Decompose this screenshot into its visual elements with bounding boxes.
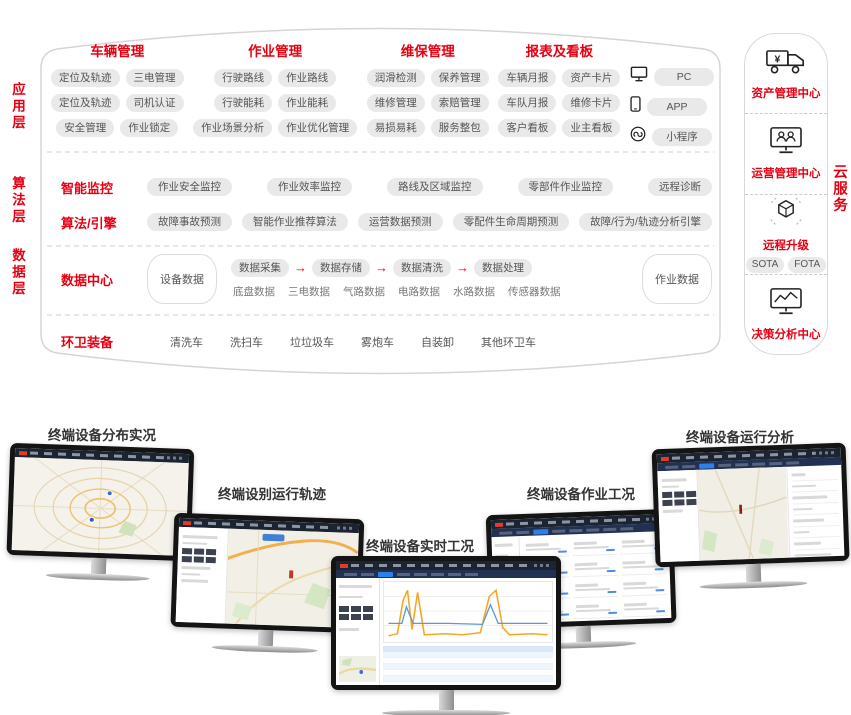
monitor-1: [6, 443, 195, 583]
placeholder-text-line: [623, 582, 646, 585]
placeholder-text-line: [575, 583, 598, 586]
placeholder-text-line: [622, 561, 645, 564]
feature-pill: 润滑检测: [367, 69, 425, 87]
equipment-item: 洗扫车: [230, 334, 263, 350]
flow-arrow-icon: →: [375, 263, 388, 273]
monitor-label: 终端设备运行分析: [686, 426, 794, 446]
active-tab: [699, 463, 714, 469]
feature-pill: 索赔管理: [431, 94, 489, 112]
client-pill: PC: [654, 68, 714, 86]
tab-segment: [569, 528, 582, 531]
pill-row: 维修管理索赔管理: [367, 94, 489, 112]
screen-map: [12, 457, 189, 556]
card-link: [606, 548, 615, 551]
device-tree-panel: [336, 578, 380, 685]
layer-label-1: 应用层: [8, 82, 26, 132]
pill-row: 行驶能耗作业能耗: [214, 94, 336, 112]
telemetry-table: [383, 646, 553, 682]
pill-row: 定位及轨迹三电管理: [51, 69, 184, 87]
feature-pill: 车辆月报: [498, 69, 556, 87]
monitor-frame: [6, 443, 194, 561]
screen-logo: [661, 456, 669, 460]
ota-pill: FOTA: [788, 257, 826, 273]
algorithm-pill: 故障事故预测: [147, 213, 232, 231]
client-pill: APP: [647, 98, 707, 116]
placeholder-text-line: [792, 484, 817, 487]
flow-step-pill: 数据采集: [231, 259, 289, 277]
placeholder-text-line: [793, 518, 824, 522]
monitor-stand-base: [211, 644, 318, 654]
cloud-services-label: 云服务: [829, 164, 850, 214]
monitor-stand-base: [382, 710, 511, 715]
equipment-item: 其他环卫车: [481, 334, 536, 350]
placeholder-text-line: [181, 579, 208, 582]
cloud-section-label: 远程升级: [763, 237, 809, 253]
operation-data-store: 作业数据: [642, 254, 712, 304]
data-center-title: 数据中心: [61, 270, 147, 289]
status-card: [572, 558, 617, 578]
tab-segment: [586, 528, 599, 531]
monitor-stand-neck: [745, 564, 761, 583]
ota-cube-icon: [768, 195, 804, 233]
algorithm-row: 智能监控作业安全监控作业效率监控路线及区域监控零部件作业监控远程诊断: [61, 175, 712, 199]
screen-user-area: [337, 527, 355, 530]
screen-tabbar: [336, 570, 556, 578]
feature-pill: 作业路线: [278, 69, 336, 87]
pill-row: 易损易耗服务整包: [367, 119, 489, 137]
screen-user-area: [167, 457, 185, 460]
tab-segment: [344, 573, 357, 576]
tab-segment: [397, 573, 410, 576]
group-title: 车辆管理: [90, 40, 144, 60]
tab-segment: [786, 461, 799, 464]
placeholder-text-line: [622, 540, 645, 543]
placeholder-text-line: [623, 565, 658, 569]
feature-group: 报表及看板车辆月报资产卡片车队月报维修卡片客户看板业主看板: [498, 40, 620, 137]
tab-segment: [718, 463, 731, 466]
placeholder-text-line: [339, 596, 363, 599]
data-layer-row: 数据中心设备数据数据采集→数据存储→数据清洗→数据处理底盘数据三电数据气路数据电…: [61, 254, 712, 304]
cloud-section-label: 资产管理中心: [752, 85, 821, 101]
device-data-store: 设备数据: [147, 254, 217, 304]
active-tab: [533, 529, 548, 535]
application-layer-row: 车辆管理定位及轨迹三电管理定位及轨迹司机认证安全管理作业锁定作业管理行驶路线作业…: [51, 40, 714, 147]
decision-chart-icon: [767, 287, 805, 322]
placeholder-text-line: [622, 544, 657, 548]
monitor-frame: [331, 556, 561, 690]
placeholder-text-line: [576, 608, 611, 612]
screen-body: [336, 578, 556, 685]
pill-row: 客户看板业主看板: [498, 119, 620, 137]
feature-pill: 司机认证: [126, 94, 184, 112]
operations-monitor-icon: [767, 126, 805, 161]
feature-pill: 作业场景分析: [193, 119, 272, 137]
algorithm-pill: 零部件作业监控: [518, 178, 614, 196]
svg-text:¥: ¥: [774, 53, 780, 65]
cloud-section: ¥资产管理中心: [745, 34, 827, 113]
monitor-stand-base: [46, 572, 149, 582]
feature-group: 维保管理润滑检测保养管理维修管理索赔管理易损易耗服务整包: [367, 40, 489, 137]
data-type-label: 三电数据: [288, 284, 330, 299]
placeholder-text-line: [623, 586, 658, 590]
flow-arrow-icon: →: [294, 263, 307, 273]
placeholder-text-line: [663, 509, 684, 512]
algorithm-row-title: 智能监控: [61, 178, 147, 197]
client-row: PC: [630, 66, 714, 87]
monitor-screen: [12, 448, 189, 556]
pill-row: 安全管理作业锁定: [56, 119, 178, 137]
feature-pill: 服务整包: [431, 119, 489, 137]
ota-pill: SOTA: [746, 257, 784, 273]
feature-pill: 行驶能耗: [214, 94, 272, 112]
group-title: 作业管理: [248, 40, 302, 60]
feature-pill: 作业能耗: [278, 94, 336, 112]
monitor-label: 终端设别运行轨迹: [218, 483, 326, 503]
cloud-section-label: 决策分析中心: [752, 326, 821, 342]
flow-step-pill: 数据存储: [312, 259, 370, 277]
table-row: [383, 676, 553, 682]
placeholder-text-line: [794, 542, 821, 545]
card-link: [558, 550, 567, 553]
feature-group: 作业管理行驶路线作业路线行驶能耗作业能耗作业场景分析作业优化管理: [193, 40, 357, 137]
tab-segment: [682, 464, 695, 467]
equipment-item: 垃垃圾车: [290, 334, 334, 350]
feature-pill: 业主看板: [562, 119, 620, 137]
analysis-map: [698, 467, 789, 561]
layer-label-2: 算法层: [8, 176, 26, 226]
active-tab: [378, 572, 393, 577]
layer-label-3: 数据层: [8, 248, 26, 298]
placeholder-text-line: [182, 542, 207, 545]
screen-topbar: [336, 561, 556, 570]
asset-truck-icon: ¥: [765, 47, 807, 81]
placeholder-text-line: [574, 541, 597, 544]
group-title: 报表及看板: [526, 40, 594, 60]
card-link: [607, 590, 616, 593]
cloud-section: 远程升级SOTAFOTA: [745, 194, 827, 274]
feature-pill: 客户看板: [498, 119, 556, 137]
tab-segment: [769, 461, 782, 464]
placeholder-text-line: [526, 547, 561, 551]
tab-segment: [414, 573, 427, 576]
card-link: [607, 569, 616, 572]
client-row: APP: [630, 96, 714, 117]
client-row: 小程序: [630, 126, 714, 147]
placeholder-text-line: [791, 473, 805, 476]
placeholder-text-line: [576, 588, 611, 592]
card-link: [560, 613, 569, 616]
tab-segment: [603, 527, 616, 530]
data-row: [794, 560, 841, 562]
screen-nav-items: [351, 564, 531, 567]
algorithm-pill: 作业安全监控: [147, 178, 232, 196]
placeholder-text-line: [793, 507, 813, 510]
algorithm-pill-row: 故障事故预测智能作业推荐算法运营数据预测零配件生命周期预测故障/行为/轨迹分析引…: [147, 213, 712, 231]
monitor-label: 终端设备实时工况: [366, 535, 474, 555]
screen-logo: [183, 521, 191, 525]
feature-pill: 资产卡片: [562, 69, 620, 87]
monitor-stand-neck: [576, 626, 592, 643]
client-pill: 小程序: [652, 128, 712, 146]
placeholder-text-line: [526, 543, 549, 546]
analysis-data-panel: [786, 465, 844, 558]
data-flow-wrap: 数据采集→数据存储→数据清洗→数据处理底盘数据三电数据气路数据电路数据水路数据传…: [217, 259, 642, 299]
data-type-label: 底盘数据: [233, 284, 275, 299]
equipment-title: 环卫装备: [61, 332, 147, 351]
placeholder-text-line: [794, 553, 831, 557]
detail-table-blocks: [339, 606, 376, 620]
feature-group: 车辆管理定位及轨迹三电管理定位及轨迹司机认证安全管理作业锁定: [51, 40, 184, 137]
miniprogram-icon: [630, 126, 646, 147]
pill-row: 定位及轨迹司机认证: [51, 94, 184, 112]
status-card: [572, 537, 617, 557]
placeholder-text-line: [339, 628, 359, 631]
placeholder-text-line: [662, 478, 687, 481]
cloud-section: 决策分析中心: [745, 274, 827, 354]
placeholder-text-line: [662, 485, 679, 488]
algorithm-pill: 零配件生命周期预测: [453, 213, 570, 231]
placeholder-text-line: [575, 567, 610, 571]
monitors-showcase: 终端设备分布实况终端设别运行轨迹终端设备实时工况终端设备作业工况终端设备运行分析: [0, 408, 851, 715]
vehicle-detail-panel: [176, 527, 230, 624]
placeholder-text-line: [574, 546, 609, 550]
ota-pill-row: SOTAFOTA: [746, 257, 826, 273]
monitor-stand-neck: [439, 690, 454, 710]
screen-user-area: [534, 564, 552, 567]
device-panel: [657, 470, 701, 562]
pc-icon: [630, 66, 648, 87]
feature-pill: 易损易耗: [367, 119, 425, 137]
algorithm-pill: 运营数据预测: [358, 213, 443, 231]
monitor-stand-neck: [90, 558, 106, 575]
tab-segment: [552, 529, 565, 532]
feature-pill: 作业优化管理: [278, 119, 357, 137]
tab-segment: [516, 530, 529, 533]
platform-architecture-diagram: 车辆管理定位及轨迹三电管理定位及轨迹司机认证安全管理作业锁定作业管理行驶路线作业…: [33, 22, 728, 377]
data-type-label: 电路数据: [398, 284, 440, 299]
algorithm-pill: 作业效率监控: [267, 178, 352, 196]
tab-segment: [735, 463, 748, 466]
algorithm-row: 算法/引擎故障事故预测智能作业推荐算法运营数据预测零配件生命周期预测故障/行为/…: [61, 210, 712, 234]
screen-user-area: [819, 451, 837, 454]
card-link: [608, 611, 617, 614]
data-type-label: 传感器数据: [508, 284, 561, 299]
flow-arrow-icon: →: [456, 263, 469, 273]
monitor-frame: [652, 443, 850, 568]
cloud-section: 运营管理中心: [745, 113, 827, 193]
tab-segment: [752, 462, 765, 465]
feature-pill: 安全管理: [56, 119, 114, 137]
placeholder-text-line: [495, 543, 513, 546]
cloud-services-panel: ¥资产管理中心运营管理中心远程升级SOTAFOTA决策分析中心: [744, 33, 828, 355]
equipment-row: 环卫装备清洗车洗扫车垃垃圾车雾炮车自装卸其他环卫车: [61, 332, 536, 351]
feature-pill: 定位及轨迹: [51, 69, 120, 87]
equipment-item: 雾炮车: [361, 334, 394, 350]
flow-step-pill: 数据清洗: [393, 259, 451, 277]
algorithm-pill: 故障/行为/轨迹分析引擎: [579, 213, 712, 231]
monitor-stand-base: [699, 580, 808, 590]
telemetry-main: [380, 578, 556, 685]
phone-icon: [630, 96, 641, 117]
monitor-screen: [657, 448, 845, 562]
placeholder-text-line: [624, 603, 647, 606]
screen-logo: [19, 451, 27, 455]
flow-step-pill: 数据处理: [474, 259, 532, 277]
algorithm-pill: 路线及区域监控: [387, 178, 483, 196]
placeholder-text-line: [793, 530, 809, 533]
tab-segment: [665, 465, 678, 468]
algorithm-row-title: 算法/引擎: [61, 213, 147, 232]
algorithm-pill-row: 作业安全监控作业效率监控路线及区域监控零部件作业监控远程诊断: [147, 178, 712, 196]
cloud-section-label: 运营管理中心: [752, 165, 821, 181]
feature-pill: 维修卡片: [562, 94, 620, 112]
screen-logo: [340, 564, 348, 568]
monitor-stand-neck: [257, 630, 273, 647]
monitor-label: 终端设备作业工况: [527, 483, 635, 503]
placeholder-text-line: [339, 585, 372, 588]
algorithm-layer-rows: 智能监控作业安全监控作业效率监控路线及区域监控零部件作业监控远程诊断算法/引擎故…: [61, 168, 712, 245]
algorithm-pill: 远程诊断: [648, 178, 712, 196]
pill-row: 润滑检测保养管理: [367, 69, 489, 87]
feature-pill: 维修管理: [367, 94, 425, 112]
card-link: [656, 610, 665, 613]
data-type-list: 底盘数据三电数据气路数据电路数据水路数据传感器数据: [231, 284, 628, 299]
tab-segment: [448, 573, 461, 576]
data-flow-chain: 数据采集→数据存储→数据清洗→数据处理: [231, 259, 628, 277]
monitor-3: [331, 556, 561, 715]
equipment-item: 清洗车: [170, 334, 203, 350]
status-card: [573, 579, 618, 599]
placeholder-text-line: [181, 573, 200, 576]
screen-body: [657, 465, 844, 562]
equipment-item: 自装卸: [421, 334, 454, 350]
tab-segment: [620, 527, 633, 530]
status-card: [574, 600, 619, 620]
feature-pill: 定位及轨迹: [51, 94, 120, 112]
placeholder-text-line: [575, 562, 598, 565]
status-card: [622, 598, 667, 618]
monitor-label: 终端设备分布实况: [48, 424, 156, 444]
placeholder-text-line: [181, 566, 210, 570]
placeholder-text-line: [576, 604, 599, 607]
placeholder-text-line: [624, 607, 659, 611]
tab-segment: [361, 573, 374, 576]
placeholder-text-line: [792, 495, 827, 499]
pill-row: 作业场景分析作业优化管理: [193, 119, 357, 137]
screen-minimap: [339, 656, 376, 682]
feature-pill: 保养管理: [431, 69, 489, 87]
client-access-list: PCAPP小程序: [630, 40, 714, 147]
detail-table-blocks: [662, 491, 694, 506]
algorithm-pill: 智能作业推荐算法: [242, 213, 348, 231]
detail-table-blocks: [182, 548, 224, 563]
feature-pill: 三电管理: [126, 69, 184, 87]
data-row: [794, 548, 841, 561]
pill-row: 车辆月报资产卡片: [498, 69, 620, 87]
placeholder-text-line: [183, 535, 218, 539]
feature-pill: 作业锁定: [120, 119, 178, 137]
tab-segment: [499, 531, 512, 534]
feature-pill: 行驶路线: [214, 69, 272, 87]
screen-logo: [495, 522, 503, 526]
tab-segment: [465, 573, 478, 576]
pill-row: 车队月报维修卡片: [498, 94, 620, 112]
data-type-label: 水路数据: [453, 284, 495, 299]
telemetry-chart: [383, 581, 553, 643]
group-title: 维保管理: [401, 40, 455, 60]
tab-segment: [431, 573, 444, 576]
feature-pill: 车队月报: [498, 94, 556, 112]
monitor-5: [652, 443, 851, 592]
data-type-label: 气路数据: [343, 284, 385, 299]
monitor-screen: [336, 561, 556, 685]
pill-row: 行驶路线作业路线: [214, 69, 336, 87]
sanitation-platform-infographic: 车辆管理定位及轨迹三电管理定位及轨迹司机认证安全管理作业锁定作业管理行驶路线作业…: [0, 0, 851, 715]
